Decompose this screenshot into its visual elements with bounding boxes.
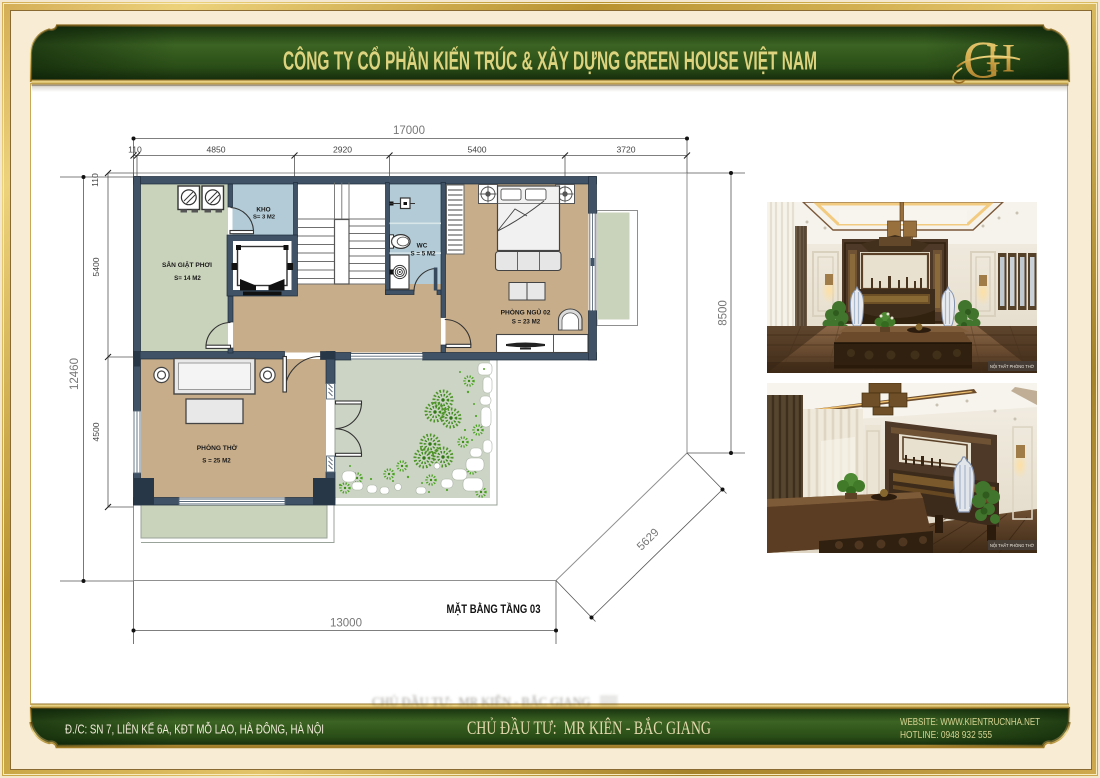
svg-text:5400: 5400 [467,145,486,155]
svg-text:12460: 12460 [69,358,81,390]
svg-text:SÂN GIẶT PHƠI: SÂN GIẶT PHƠI [162,260,212,269]
svg-text:8500: 8500 [718,300,730,326]
svg-text:PHÒNG THỜ: PHÒNG THỜ [197,443,238,452]
svg-text:13000: 13000 [330,618,362,630]
svg-text:NỘI THẤT PHÒNG THỜ: NỘI THẤT PHÒNG THỜ [990,363,1034,369]
svg-text:3720: 3720 [616,145,635,155]
svg-text:MẶT BẰNG TẦNG 03: MẶT BẰNG TẦNG 03 [447,602,541,616]
svg-text:PHÒNG NGỦ 02: PHÒNG NGỦ 02 [501,308,551,317]
svg-text:4500: 4500 [91,422,101,441]
svg-text:5629: 5629 [635,527,662,553]
svg-text:S = 23 M2: S = 23 M2 [512,319,541,326]
svg-text:S= 3 M2: S= 3 M2 [253,215,276,221]
svg-text:110: 110 [90,173,100,187]
svg-text:WC: WC [417,243,428,250]
svg-text:2920: 2920 [333,145,352,155]
svg-text:NỘI THẤT PHÒNG THỜ: NỘI THẤT PHÒNG THỜ [990,542,1034,548]
svg-text:S = 5 M2: S = 5 M2 [411,251,436,258]
svg-text:5400: 5400 [91,257,101,276]
svg-text:4850: 4850 [206,145,225,155]
svg-text:S = 25 M2: S = 25 M2 [202,458,231,465]
svg-text:110: 110 [128,145,142,155]
svg-text:KHO: KHO [256,207,270,214]
svg-text:17000: 17000 [393,125,425,137]
svg-text:S= 14 M2: S= 14 M2 [174,275,201,282]
